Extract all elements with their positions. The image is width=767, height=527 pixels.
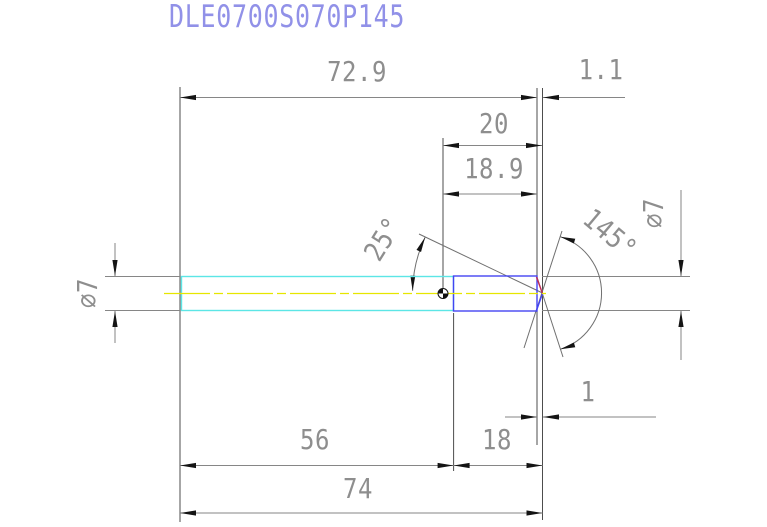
dim-arrow <box>678 311 683 327</box>
dim-arrow <box>526 143 542 148</box>
dim-point-to-tip: 20 <box>443 108 542 148</box>
dim-arrow <box>454 463 470 468</box>
dim-label: ⌀7 <box>72 278 104 308</box>
dim-overall-to-shoulder: 72.9 <box>180 56 537 100</box>
marker-quadrant <box>443 294 448 299</box>
dim-label: 18 <box>482 424 512 456</box>
angle-arc <box>413 237 426 290</box>
dim-label: 145° <box>576 203 642 266</box>
dim-label: 74 <box>343 473 373 505</box>
dim-arrow <box>416 236 427 252</box>
marker-quadrant <box>438 289 443 294</box>
dim-arrow <box>438 463 454 468</box>
dim-arrow <box>410 276 415 291</box>
dim-flute-length: 18 <box>454 424 543 468</box>
angle-dim-145: 145° <box>524 203 643 357</box>
dim-arrow <box>112 260 117 276</box>
dim-label: 56 <box>300 424 330 456</box>
dia-dim-right: ⌀7 <box>542 190 690 360</box>
drawing-canvas[interactable]: DLE0700S070P145 72.9 1.1 20 18.9 <box>0 0 767 523</box>
dim-arrow <box>527 463 543 468</box>
dim-label: 20 <box>479 108 509 140</box>
dim-label: 1 <box>581 376 596 408</box>
angle-dim-25: 25° <box>358 212 542 293</box>
dia-dim-left: ⌀7 <box>72 243 180 343</box>
dim-arrow <box>180 95 196 100</box>
dim-arrow <box>443 191 459 196</box>
dim-arrow <box>521 95 537 100</box>
angle-arc <box>560 237 601 350</box>
part-geometry <box>164 276 546 311</box>
dim-arrow <box>180 463 196 468</box>
dim-shank-length: 56 <box>180 424 454 468</box>
dim-arrow <box>527 510 543 515</box>
dim-arrow <box>543 414 559 419</box>
dim-arrow <box>678 260 683 276</box>
dim-label: 25° <box>358 212 409 267</box>
dim-arrow <box>559 234 575 243</box>
dim-label: 72.9 <box>327 56 387 88</box>
dim-arrow <box>559 343 575 352</box>
dim-point-to-shoulder: 18.9 <box>443 153 537 196</box>
extension-lines <box>180 87 543 522</box>
dim-arrow <box>543 95 559 100</box>
dim-label: 1.1 <box>579 54 624 86</box>
dim-arrow <box>112 311 117 327</box>
dim-label: ⌀7 <box>638 198 670 228</box>
dim-arrow <box>521 414 537 419</box>
dim-overall-length: 74 <box>180 473 543 515</box>
dim-arrow <box>443 143 459 148</box>
dim-arrow <box>180 510 196 515</box>
dim-tip-length-top: 1.1 <box>543 54 625 100</box>
dim-label: 18.9 <box>464 153 524 185</box>
dim-arrow <box>521 191 537 196</box>
angle-reference-line <box>419 234 543 293</box>
dim-tip-length-bottom: 1 <box>505 376 656 419</box>
part-number-title: DLE0700S070P145 <box>169 0 405 35</box>
drawing-viewport: DLE0700S070P145 72.9 1.1 20 18.9 <box>0 0 767 523</box>
reference-point-marker <box>438 289 448 299</box>
